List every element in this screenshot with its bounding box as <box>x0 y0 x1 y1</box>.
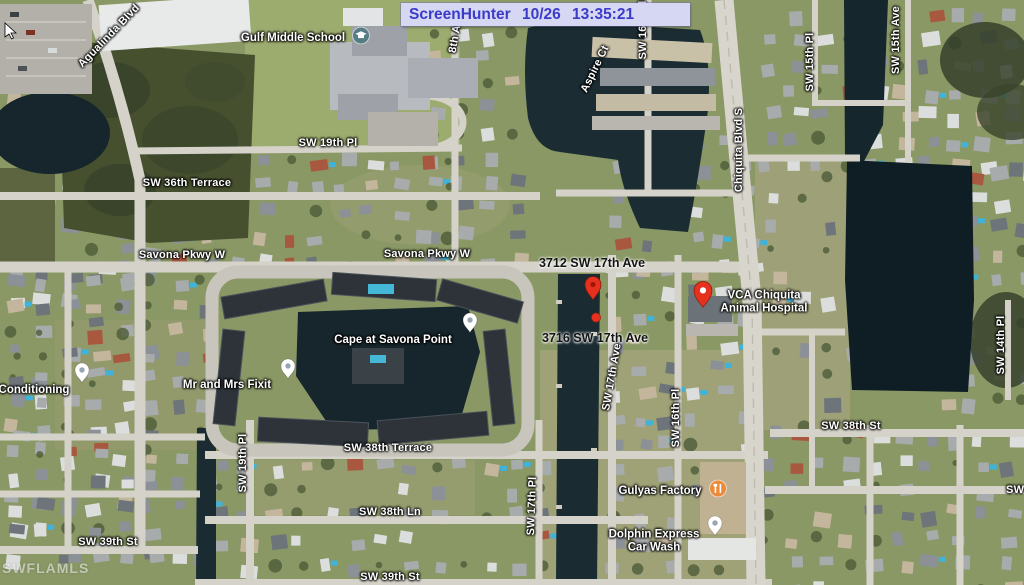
street-label: SW 15th Pl <box>804 33 816 92</box>
poi-label-conditioning[interactable]: Conditioning <box>0 384 69 397</box>
poi-label-text: Car Wash <box>609 541 700 554</box>
school-icon[interactable] <box>352 27 370 50</box>
street-label: SW 38th Ln <box>359 506 421 518</box>
poi-label-text: Gulyas Factory <box>618 485 701 498</box>
pin-white-icon[interactable] <box>462 312 478 338</box>
address-label: 3716 SW 17th Ave <box>542 331 648 345</box>
street-label: SW 39th St <box>360 571 419 583</box>
street-label: Chiquita Blvd S <box>733 108 745 192</box>
map-viewport[interactable]: ScreenHunter 10/26 13:35:21 SWFLAMLS Agu… <box>0 0 1024 585</box>
restaurant-icon[interactable] <box>709 480 727 503</box>
apartment-buildings <box>592 37 720 130</box>
street-label: SW 39th St <box>78 536 137 548</box>
poi-label-vca-chiquita-animal-hospital[interactable]: VCA ChiquitaAnimal Hospital <box>721 290 808 315</box>
poi-label-cape-at-savona-point[interactable]: Cape at Savona Point <box>334 334 452 347</box>
mouse-cursor <box>4 22 18 40</box>
street-label: SW 38th St <box>821 420 880 432</box>
address-label: 3712 SW 17th Ave <box>539 256 645 270</box>
poi-label-text: Dolphin Express <box>609 529 700 542</box>
satellite-imagery <box>0 0 1024 585</box>
pin-white-icon[interactable] <box>707 515 723 541</box>
street-label: SW 14th Pl <box>995 316 1007 375</box>
screenhunter-timestamp-overlay: ScreenHunter 10/26 13:35:21 <box>401 3 690 26</box>
street-label: Savona Pkwy W <box>384 248 470 260</box>
listing-pin-marker[interactable] <box>584 276 602 305</box>
poi-label-dolphin-express-car-wash[interactable]: Dolphin ExpressCar Wash <box>609 529 700 554</box>
screenhunter-text: ScreenHunter 10/26 13:35:21 <box>409 6 634 24</box>
street-label: SW 38th Ln <box>1006 484 1024 496</box>
pin-red-icon[interactable] <box>692 280 714 313</box>
street-label: SW 36th Terrace <box>143 177 231 189</box>
poi-label-text: VCA Chiquita <box>721 290 808 303</box>
street-label: Savona Pkwy W <box>139 249 225 261</box>
pin-white-icon[interactable] <box>280 358 296 384</box>
pin-white-icon[interactable] <box>74 362 90 388</box>
poi-label-mr-and-mrs-fixit[interactable]: Mr and Mrs Fixit <box>183 379 271 392</box>
poi-label-text: Animal Hospital <box>721 302 808 315</box>
street-label: SW 15th Ave <box>890 6 902 74</box>
poi-label-text: Cape at Savona Point <box>334 334 452 347</box>
street-label: SW 38th Terrace <box>344 442 432 454</box>
listing-dot-marker[interactable] <box>591 310 602 328</box>
street-label: SW 19th Pl <box>237 434 249 493</box>
street-label: SW 16th Pl <box>670 389 682 448</box>
mls-watermark: SWFLAMLS <box>2 560 89 576</box>
poi-label-gulyas-factory[interactable]: Gulyas Factory <box>618 485 701 498</box>
poi-label-text: Conditioning <box>0 384 69 397</box>
poi-label-text: Mr and Mrs Fixit <box>183 379 271 392</box>
poi-label-text: Gulf Middle School <box>241 32 345 45</box>
street-label: SW 19th Pl <box>299 137 358 149</box>
street-label: SW 17th Pl <box>525 476 539 535</box>
poi-label-gulf-middle-school[interactable]: Gulf Middle School <box>241 32 345 45</box>
